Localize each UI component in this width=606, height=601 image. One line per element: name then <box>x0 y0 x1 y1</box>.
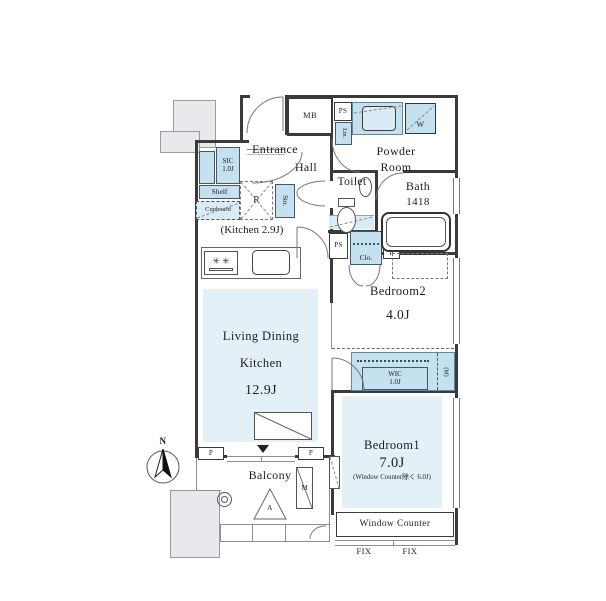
balcony-m-diagonal <box>297 468 312 508</box>
bedroom1-door-arc <box>332 358 364 390</box>
floor-plan: Window Counter FIX FIX MB PS Lin. W SIC … <box>0 0 606 601</box>
balcony-corner-arc <box>310 526 326 539</box>
entrance-door-arc <box>247 97 283 133</box>
hall-door-arc <box>252 152 302 183</box>
compass-icon <box>147 449 179 483</box>
table-diagonal <box>255 413 311 439</box>
toilet-counter-diagonal <box>330 217 373 227</box>
toilet-door-arc1 <box>297 181 325 193</box>
plan-lines-overlay <box>0 0 606 601</box>
vanity-diagonal <box>354 106 401 113</box>
ac-unit-triangle <box>254 489 286 519</box>
opening-direction-marker <box>257 445 269 453</box>
bath-door-arc <box>376 173 403 200</box>
ac-sleeve-diagonal <box>330 457 339 488</box>
ldk-door-arc <box>297 227 328 258</box>
washer-diagonal <box>407 106 434 130</box>
cupboard-diagonal <box>197 203 239 218</box>
toilet-door-arc2 <box>297 193 325 206</box>
closet-door-arc2 <box>366 265 380 286</box>
closet-door-arc1 <box>349 265 363 286</box>
powder-door-arc <box>332 139 360 172</box>
